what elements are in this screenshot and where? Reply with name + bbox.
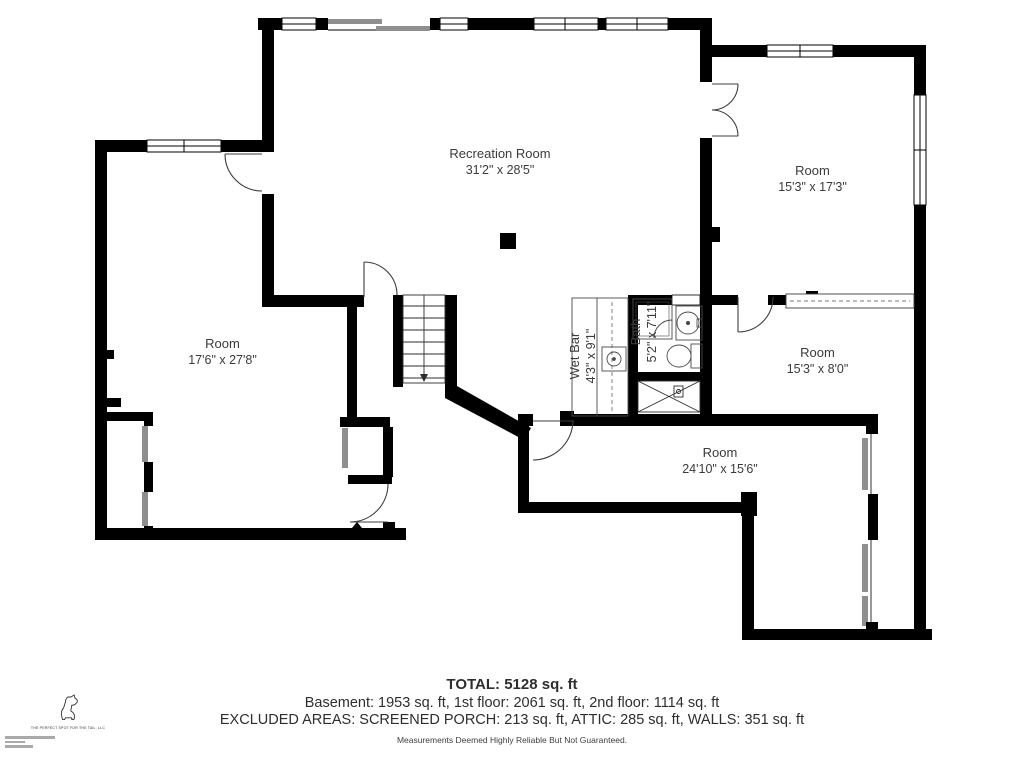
window xyxy=(767,45,833,57)
wall xyxy=(700,138,712,302)
floor-plan-drawing xyxy=(0,0,1024,660)
window xyxy=(440,18,468,30)
wall xyxy=(262,18,274,152)
wall-seg xyxy=(866,414,878,434)
wall xyxy=(347,300,357,418)
window xyxy=(914,95,926,205)
wall-seg xyxy=(866,622,878,629)
room-label-wet-bar: Wet Bar 4'3" x 9'1" xyxy=(566,296,610,416)
wall xyxy=(316,18,328,30)
company-name: THE PERFECT SPOT FOR THE TAIL, LLC xyxy=(26,726,110,730)
pocket-door-panel xyxy=(862,438,868,490)
wall-tick xyxy=(107,350,114,359)
total-area: TOTAL: 5128 sq. ft xyxy=(0,676,1024,693)
wall-seg xyxy=(868,494,878,540)
wall xyxy=(262,194,274,302)
wall xyxy=(348,475,392,484)
pocket-door-panel xyxy=(862,544,868,592)
excluded-areas: EXCLUDED AREAS: SCREENED PORCH: 213 sq. … xyxy=(0,712,1024,728)
wall xyxy=(221,140,262,152)
pocket-door-panel xyxy=(142,426,148,462)
room-name: Bath xyxy=(627,277,644,387)
room-label-bath: Bath 5'2" x 7'11" xyxy=(627,277,677,387)
diagonal-wall xyxy=(445,386,531,440)
room-dimensions: 17'6" x 27'8" xyxy=(140,352,305,369)
closet-shelf xyxy=(786,294,914,308)
room-name: Wet Bar xyxy=(566,296,583,416)
wall xyxy=(95,528,406,540)
wall xyxy=(144,412,153,426)
room-name: Room xyxy=(140,335,305,352)
room-label-top-right: Room 15'3" x 17'3" xyxy=(730,162,895,196)
window xyxy=(282,18,316,30)
floor-plan-page: Recreation Room 31'2" x 28'5" Room 15'3"… xyxy=(0,0,1024,768)
door xyxy=(225,154,262,191)
tick-marker xyxy=(352,522,362,528)
room-dimensions: 15'3" x 17'3" xyxy=(730,179,895,196)
window xyxy=(534,18,598,30)
disclaimer-text: Measurements Deemed Highly Reliable But … xyxy=(0,735,1024,745)
room-dimensions: 15'3" x 8'0" xyxy=(735,361,900,378)
wall xyxy=(100,412,146,421)
floor-areas: Basement: 1953 sq. ft, 1st floor: 2061 s… xyxy=(0,695,1024,711)
pocket-door-panel xyxy=(862,596,868,626)
pocket-door-panel xyxy=(342,428,348,468)
wall xyxy=(383,427,393,477)
wall xyxy=(430,18,440,30)
room-name: Recreation Room xyxy=(380,145,620,162)
stairs xyxy=(403,295,445,383)
wall-tick xyxy=(95,398,121,407)
wall-corner xyxy=(383,522,395,540)
room-label-left: Room 17'6" x 27'8" xyxy=(140,335,305,369)
wall xyxy=(393,295,403,387)
room-name: Room xyxy=(630,444,810,461)
fine-print-line xyxy=(5,741,25,744)
room-dimensions: 5'2" x 7'11" xyxy=(644,277,661,387)
room-label-recreation: Recreation Room 31'2" x 28'5" xyxy=(380,145,620,179)
window xyxy=(147,140,221,152)
wall xyxy=(144,462,153,492)
wall xyxy=(340,417,390,427)
company-logo: THE PERFECT SPOT FOR THE TAIL, LLC xyxy=(26,694,110,730)
wall xyxy=(598,18,606,30)
support-post xyxy=(500,233,516,249)
wall xyxy=(144,526,153,540)
wall xyxy=(833,45,914,57)
door xyxy=(350,484,388,522)
wall xyxy=(712,45,767,57)
door xyxy=(738,297,773,332)
wall xyxy=(742,629,932,640)
summary-footer: TOTAL: 5128 sq. ft Basement: 1953 sq. ft… xyxy=(0,676,1024,745)
room-name: Room xyxy=(730,162,895,179)
fine-print xyxy=(5,736,55,750)
wall xyxy=(712,295,738,305)
wall xyxy=(768,295,786,305)
room-name: Room xyxy=(735,344,900,361)
room-dimensions: 4'3" x 9'1" xyxy=(583,296,600,416)
room-label-right-middle: Room 15'3" x 8'0" xyxy=(735,344,900,378)
fine-print-line xyxy=(5,745,33,748)
room-dimensions: 24'10" x 15'6" xyxy=(630,461,810,478)
room-dimensions: 31'2" x 28'5" xyxy=(380,162,620,179)
double-door xyxy=(712,84,738,136)
wall xyxy=(445,295,457,397)
wall xyxy=(518,502,756,513)
sink-vanity xyxy=(676,306,702,340)
dog-icon xyxy=(55,694,81,720)
sliding-door-panel xyxy=(328,19,382,24)
fine-print-line xyxy=(5,736,55,739)
sliding-door-panel xyxy=(376,26,430,31)
pocket-door-panel xyxy=(142,492,148,526)
wall xyxy=(914,205,926,640)
wall xyxy=(95,140,107,540)
wall xyxy=(914,45,926,95)
wall-tick xyxy=(711,227,720,242)
wall xyxy=(742,502,754,640)
window xyxy=(606,18,668,30)
room-label-bottom: Room 24'10" x 15'6" xyxy=(630,444,810,478)
wall xyxy=(700,18,712,82)
door xyxy=(364,262,397,297)
wall xyxy=(468,18,534,30)
walls-group xyxy=(95,18,932,640)
